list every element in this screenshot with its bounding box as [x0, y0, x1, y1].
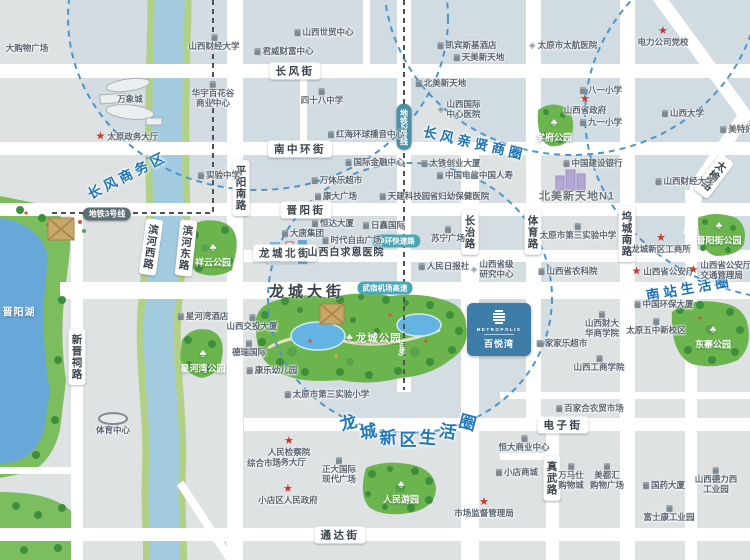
- building-icon: [336, 457, 342, 464]
- building-icon: [312, 220, 318, 227]
- metro-line-pill: 地铁2号线: [397, 104, 412, 150]
- poi-label: 大购物广场: [6, 44, 49, 54]
- building-icon: [419, 263, 425, 270]
- hospital-icon: ◈: [529, 41, 536, 50]
- building-icon: [563, 160, 569, 167]
- building-icon: [537, 340, 543, 347]
- poi-label: 山西大学: [662, 109, 704, 119]
- poi-text: 北美新天地: [424, 79, 467, 89]
- poi-label: 天美新天地: [454, 53, 505, 63]
- poi-label: 综合市场: [247, 459, 281, 469]
- building-icon: [363, 222, 369, 229]
- poi-label: 山西财经大学: [188, 34, 239, 52]
- poi-text: 康大广场: [323, 192, 357, 202]
- poi-text: 山西世贸中心: [302, 28, 353, 38]
- park-name: 人民游园: [383, 493, 419, 506]
- district-label-arc-char: 圈: [457, 407, 480, 436]
- road-pill-vertical: 滨河西路: [139, 218, 164, 276]
- park-name: 学府公园: [536, 131, 572, 144]
- poi-label: ◈山西国际中心医院: [438, 100, 481, 120]
- poi-text: 大购物广场: [6, 44, 49, 54]
- poi-text: 恒达大厦: [320, 219, 354, 229]
- poi-label: 万体乐超市: [312, 176, 363, 186]
- poi-text: 小店商城: [504, 468, 538, 478]
- poi-text: 龙城新区工商所: [631, 245, 691, 255]
- building-icon: [655, 178, 661, 185]
- poi-label: 太原市第三实验中学: [540, 223, 617, 241]
- poi-text: 省妇幼保健医院: [430, 192, 490, 202]
- poi-text: 中国建设银行: [571, 159, 622, 169]
- poi-label: 红海环球播音中心: [328, 130, 404, 140]
- building-icon: [380, 193, 386, 200]
- building-icon: [178, 313, 184, 320]
- building-icon: [538, 268, 544, 275]
- poi-label: ★太原政务大厅: [96, 132, 159, 143]
- building-icon: [575, 223, 581, 230]
- poi-label: 山西白求恩医院: [308, 247, 385, 259]
- building-icon: [416, 80, 422, 87]
- building-icon: [294, 29, 300, 36]
- poi-text: 北美新天地N1: [539, 191, 615, 204]
- park-label: ♣晋阳街公园: [696, 222, 741, 247]
- poi-text: 正大国际现代广场: [322, 465, 356, 485]
- poi-text: 实验中学: [206, 171, 240, 181]
- poi-label: 正大国际现代广场: [322, 457, 356, 485]
- poi-label: 太铁创业大厦: [421, 159, 480, 169]
- tree-icon: ♣: [200, 350, 207, 360]
- poi-text: 山西省政府: [564, 106, 607, 116]
- poi-text: 星河湾酒店: [186, 312, 229, 322]
- poi-text: 中国环保大厦: [642, 300, 693, 310]
- building-icon: [604, 463, 610, 470]
- star-icon: ★: [479, 497, 489, 508]
- road-label-longcheng-avenue: 龙城大街: [269, 281, 345, 302]
- building-icon: [653, 318, 659, 325]
- poi-label: 德瑞国际: [232, 340, 266, 358]
- building-icon: [666, 505, 672, 512]
- road-pill-vertical: 平阳南路: [233, 160, 250, 216]
- star-icon: ★: [580, 94, 590, 105]
- project-logo-card: METROPOLIS 百悦湾: [467, 303, 531, 356]
- tree-icon: ♣: [210, 244, 217, 254]
- poi-text: 华宇百花谷商业中心: [192, 89, 235, 109]
- poi-label: 恒大商业中心: [498, 435, 549, 453]
- poi-label: 中国建设银行: [563, 159, 622, 169]
- poi-text: 国际金融中心: [353, 158, 404, 168]
- poi-text: 山西德力西工业园: [695, 475, 738, 495]
- hospital-icon: ◈: [421, 192, 428, 201]
- poi-label: 时代自由广场: [322, 236, 381, 246]
- metro-line-pill: 地铁3号线: [83, 208, 131, 221]
- tree-icon: ♣: [716, 222, 723, 232]
- building-icon: [282, 230, 288, 237]
- poi-text: 山西财经大学: [188, 42, 239, 52]
- poi-text: 体育中心: [96, 426, 130, 436]
- poi-label: ★电力公司党校: [637, 26, 688, 48]
- poi-label: 人民日报社: [419, 262, 470, 272]
- poi-label: 四十八中学: [301, 88, 344, 106]
- poi-label: 君威财富中心: [254, 47, 313, 57]
- park-name: 祥云公园: [195, 256, 231, 269]
- poi-label: 美特好: [720, 125, 750, 135]
- building-icon: [713, 467, 719, 474]
- district-label-arc-char: 活: [437, 416, 458, 444]
- road-pill: 晋阳街: [281, 202, 332, 219]
- building-icon: [445, 226, 451, 233]
- tree-icon: ♣: [346, 333, 354, 343]
- stadium-icon: [98, 412, 128, 425]
- star-icon: ★: [96, 132, 106, 143]
- district-label-arc-char: 城: [357, 416, 378, 444]
- road-pill: 长风街: [270, 63, 321, 80]
- poi-label: 体育中心: [96, 412, 130, 436]
- road-pill: 南中环街: [268, 141, 332, 158]
- building-icon: [437, 172, 443, 179]
- building-icon: [580, 119, 586, 126]
- poi-label: ★山西省公安厅交通管理局: [689, 261, 750, 281]
- building-icon: [634, 301, 640, 308]
- district-label-arc-char: 生: [418, 423, 437, 449]
- logo-building-icon: [493, 310, 505, 324]
- poi-label: 山西德力西工业园: [695, 467, 738, 495]
- poi-text: 凯宾斯基酒店: [445, 41, 496, 51]
- star-icon: ★: [284, 436, 294, 447]
- star-icon: ★: [689, 266, 699, 277]
- poi-label: ◈山西省级研究中心: [471, 260, 514, 280]
- park-label: ♣人民游园: [383, 481, 419, 506]
- poi-text: 恒大商业中心: [498, 443, 549, 453]
- poi-label: ★山西省政府: [564, 94, 607, 116]
- poi-text: 山西省公安厅: [643, 267, 694, 277]
- poi-label: 北美新天地: [416, 79, 467, 89]
- poi-text: 百家合农贸市场: [564, 404, 624, 414]
- poi-text: 九一小学: [588, 118, 622, 128]
- poi-label: ★龙城新区工商所: [631, 233, 691, 255]
- poi-text: 太原市第三实验中学: [540, 231, 617, 241]
- building-icon: [285, 391, 291, 398]
- poi-label: 山西工商学院: [573, 355, 624, 373]
- poi-label: ★小店区人民政府: [258, 484, 318, 506]
- star-icon: ★: [283, 484, 293, 495]
- building-icon: [437, 42, 443, 49]
- poi-text: 小店区人民政府: [258, 496, 318, 506]
- building-icon: [643, 482, 649, 489]
- poi-text: 美都汇购物广场: [590, 471, 624, 491]
- expressway-pill: 武宿机场高速: [358, 282, 413, 295]
- star-icon: ★: [656, 233, 666, 244]
- building-icon: [662, 110, 668, 117]
- building-icon: [315, 193, 321, 200]
- poi-label: 富士康工业园: [643, 505, 694, 523]
- building-icon: [254, 48, 260, 55]
- building-icon: [720, 126, 726, 133]
- park-label: ♣学府公园: [536, 119, 572, 144]
- poi-text: 君威财富中心: [262, 47, 313, 57]
- building-icon: [328, 131, 334, 138]
- poi-label: 家家乐超市: [537, 339, 588, 349]
- building-icon: [454, 54, 460, 61]
- poi-label: 山西财经大学: [655, 177, 714, 187]
- poi-label: 太原五中新校区: [626, 318, 686, 336]
- building-icon: [211, 34, 217, 41]
- poi-label: 山西世贸中心: [294, 28, 353, 38]
- poi-text: 山西白求恩医院: [308, 247, 385, 259]
- building-icon: [521, 435, 527, 442]
- poi-label: 国际金融中心: [345, 158, 404, 168]
- poi-label: 华宇百花谷商业中心: [192, 81, 235, 109]
- district-label-arc-char: 新: [378, 423, 397, 449]
- poi-text: 家家乐超市: [545, 339, 588, 349]
- poi-text: 太原市太航医院: [538, 41, 598, 51]
- poi-text: 山西省农科院: [546, 267, 597, 277]
- park-name: 晋阳街公园: [696, 234, 741, 247]
- building-icon: [421, 160, 427, 167]
- poi-label: 山西交投大厦: [226, 314, 277, 332]
- poi-label: 实验中学: [198, 171, 240, 181]
- poi-label: ◈省妇幼保健医院: [421, 192, 489, 202]
- poi-text: 山西省公安厅交通管理局: [700, 261, 750, 281]
- building-icon: [471, 172, 477, 179]
- poi-label: 苏宁广场: [431, 226, 465, 244]
- poi-text: 人民日报社: [427, 262, 470, 272]
- poi-text: 山西工商学院: [573, 363, 624, 373]
- poi-text: 太原五中新校区: [626, 326, 686, 336]
- park-label: ♣祥云公园: [195, 244, 231, 269]
- building-icon: [319, 88, 325, 95]
- poi-text: 康乐幼儿园: [255, 366, 298, 376]
- poi-text: 山西交投大厦: [226, 322, 277, 332]
- poi-text: 太原政务大厅: [107, 132, 158, 142]
- poi-text: 综合市场: [247, 459, 281, 469]
- poi-text: 四十八中学: [301, 96, 344, 106]
- poi-text: 时代自由广场: [330, 236, 381, 246]
- poi-label: 万象城: [117, 95, 143, 105]
- poi-label: 星河湾酒店: [178, 312, 229, 322]
- poi-text: 大唐集团: [290, 229, 324, 239]
- poi-text: 红海环球播音中心: [336, 130, 404, 140]
- star-icon: ★: [658, 26, 668, 37]
- poi-label: 太原市第三实验小学: [285, 390, 370, 400]
- park-name: 星河湾公园: [180, 362, 225, 375]
- poi-text: 万象城: [117, 95, 143, 105]
- lake-label: 晋阳湖: [3, 304, 36, 319]
- poi-label: 百家合农贸市场: [556, 404, 624, 414]
- map-canvas: METROPOLIS 百悦湾 龙城大街 (在建) 长风商务区长风亲贤商圈南站生活…: [0, 0, 750, 560]
- poi-text: 市场监督管理局: [454, 509, 514, 519]
- poi-label: 国药大厦: [643, 481, 685, 491]
- poi-label: ◈太原市太航医院: [529, 41, 597, 51]
- poi-label: 山西财大华商学院: [585, 311, 619, 339]
- poi-text: 万体乐超市: [320, 176, 363, 186]
- building-icon: [246, 340, 252, 347]
- building-icon: [556, 405, 562, 412]
- poi-label: 北美新天地N1: [539, 191, 615, 204]
- poi-label: 康大广场: [315, 192, 357, 202]
- poi-label: 中国环保大厦: [634, 300, 693, 310]
- poi-text: 太原市第三实验小学: [293, 390, 370, 400]
- poi-text: 山西财大华商学院: [585, 319, 619, 339]
- tree-icon: ♣: [551, 119, 558, 129]
- park-name: 龙城公园: [356, 331, 402, 346]
- poi-text: 中国人寿: [479, 171, 513, 181]
- poi-label: 日鑫国际: [363, 221, 405, 231]
- star-icon: ★: [632, 267, 642, 278]
- poi-label: ★市场监督管理局: [454, 497, 514, 519]
- poi-text: 美特好: [728, 125, 750, 135]
- park-label: ♣东寨公园: [695, 326, 731, 351]
- district-label: 长风商务区: [83, 145, 170, 203]
- poi-text: 德瑞国际: [232, 348, 266, 358]
- poi-text: 山西省级研究中心: [479, 260, 513, 280]
- park-name: 东寨公园: [695, 338, 731, 351]
- district-label-arc-char: 龙: [337, 407, 360, 436]
- tree-icon: ♣: [710, 326, 717, 336]
- road-pill: 电子街: [538, 417, 589, 434]
- logo-name-en: METROPOLIS: [477, 327, 522, 332]
- poi-text: 山西财经大学: [663, 177, 714, 187]
- building-icon: [596, 355, 602, 362]
- park-label: ♣星河湾公园: [180, 350, 225, 375]
- road-pill-vertical: 新晋祠路: [69, 329, 86, 385]
- poi-label: 中国人寿: [471, 171, 513, 181]
- poi-text: 山西大学: [670, 109, 704, 119]
- poi-text: 天美新天地: [462, 53, 505, 63]
- poi-text: 万马仕购物城: [558, 471, 584, 491]
- poi-label: 小店商城: [496, 468, 538, 478]
- logo-name-zh: 百悦湾: [484, 334, 514, 350]
- building-icon: [210, 81, 216, 88]
- tree-icon: ♣: [398, 481, 405, 491]
- poi-label: 山西省农科院: [538, 267, 597, 277]
- road-pill: 通达街: [315, 527, 366, 544]
- building-icon: [247, 367, 253, 374]
- park-label: ♣龙城公园: [346, 331, 402, 346]
- poi-label: 大唐集团: [282, 229, 324, 239]
- building-icon: [249, 314, 255, 321]
- poi-text: 山西国际中心医院: [446, 100, 480, 120]
- building-icon: [322, 237, 328, 244]
- poi-label: ★山西省公安厅: [632, 267, 695, 278]
- building-icon: [198, 172, 204, 179]
- road-pill-vertical: 滨河东路: [175, 219, 198, 276]
- building-icon: [568, 463, 574, 470]
- hospital-icon: ◈: [438, 106, 445, 115]
- poi-text: 苏宁广场: [431, 234, 465, 244]
- building-icon: [496, 469, 502, 476]
- poi-label: 康乐幼儿园: [247, 366, 298, 376]
- poi-text: 电力公司党校: [637, 38, 688, 48]
- poi-label: 凯宾斯基酒店: [437, 41, 496, 51]
- hospital-icon: ◈: [471, 266, 478, 275]
- poi-label: 九一小学: [580, 118, 622, 128]
- building-icon: [599, 311, 605, 318]
- district-label-arc-char: 区: [400, 426, 417, 451]
- poi-label: 美都汇购物广场: [590, 463, 624, 491]
- poi-text: 日鑫国际: [371, 221, 405, 231]
- building-icon: [312, 177, 318, 184]
- poi-text: 国药大厦: [651, 481, 685, 491]
- district-label: 长风亲贤商圈: [422, 120, 529, 163]
- poi-text: 富士康工业园: [643, 513, 694, 523]
- poi-text: 太铁创业大厦: [429, 159, 480, 169]
- building-icon: [345, 159, 351, 166]
- map-labels: METROPOLIS 百悦湾 龙城大街 (在建) 长风商务区长风亲贤商圈南站生活…: [0, 0, 750, 560]
- poi-label: 万马仕购物城: [558, 463, 584, 491]
